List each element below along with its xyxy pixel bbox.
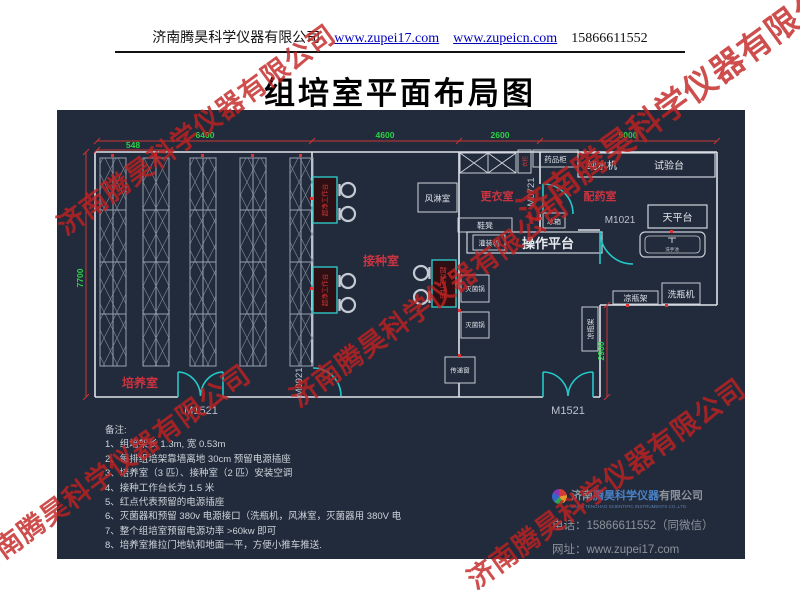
door-code-m1021: M1021 xyxy=(605,215,636,226)
dim-6400: 6400 xyxy=(196,130,215,140)
shoe-bench: 鞋凳 xyxy=(458,218,512,232)
dim-7700: 7700 xyxy=(75,268,85,287)
hand-sink-label: 洗手池 xyxy=(665,246,679,253)
balance-table: 天平台 xyxy=(648,205,707,228)
balance-table-label: 天平台 xyxy=(663,211,693,224)
bottle-rack-label: 凉瓶架 xyxy=(624,293,648,303)
bottle-rack-label: 凉瓶架 xyxy=(586,319,595,340)
test-bench-label: 试验台 xyxy=(654,159,684,172)
header-link-zupei17[interactable]: www.zupei17.com xyxy=(334,31,439,47)
footer-phone-value: 15866611552（同微信） xyxy=(587,520,714,532)
note-item: 1、组培架长 1.3m, 宽 0.53m xyxy=(105,438,455,452)
sterilizer-label: 灭菌锅 xyxy=(465,284,485,293)
page: 济南腾昊科学仪器有限公司 www.zupei17.com www.zupeicn… xyxy=(0,0,800,600)
clean-bench-label: 超净工作台 xyxy=(439,267,448,300)
footer-company-prefix: 济南 xyxy=(571,490,593,502)
medicine-cabinet-label: 药品柜 xyxy=(544,154,567,164)
fridge-label: 冰箱 xyxy=(547,217,561,226)
door-code-m0721: M0721 xyxy=(526,177,537,206)
top-counter: 纯水机 试验台 xyxy=(578,153,715,177)
footer-company-core: 腾昊科学仪器 xyxy=(593,490,659,502)
air-shower-label: 风淋室 xyxy=(425,194,451,204)
sterilizer-2: 灭菌锅 xyxy=(461,312,489,338)
note-item: 2、每排组培架靠墙离地 30cm 预留电源插座 xyxy=(105,453,455,467)
dim-4600: 4600 xyxy=(376,130,395,140)
door-code-m1521: M1521 xyxy=(184,405,218,417)
note-item: 8、培养室推拉门地轨和地面一平，方便小推车推送. xyxy=(105,539,455,553)
transfer-window: 传递窗 xyxy=(445,357,475,383)
stools xyxy=(340,183,430,312)
room-culture: 培养室 xyxy=(122,375,158,390)
header-company: 济南腾昊科学仪器有限公司 xyxy=(152,27,320,47)
notes-block: 备注: 1、组培架长 1.3m, 宽 0.53m 2、每排组培架靠墙离地 30c… xyxy=(105,424,455,554)
clean-bench-label: 超净工作台 xyxy=(320,184,329,217)
header-link-zupeicn[interactable]: www.zupeicn.com xyxy=(453,31,557,47)
header-divider xyxy=(115,51,685,53)
footer-company-suffix: 有限公司 xyxy=(659,490,703,502)
filling-machine: 灌装机 xyxy=(473,235,505,250)
hand-sink: 洗手池 xyxy=(640,232,705,257)
sterilizer-1: 灭菌锅 xyxy=(461,275,489,302)
culture-racks xyxy=(100,158,313,366)
transfer-window-label: 传递窗 xyxy=(450,366,470,375)
sterilizer-label: 灭菌锅 xyxy=(465,320,485,329)
bottle-washer-label: 洗瓶机 xyxy=(667,289,694,300)
dim-548: 548 xyxy=(126,140,140,150)
walls xyxy=(95,152,717,397)
water-purifier-label: 纯水机 xyxy=(587,159,617,172)
door-code-m0921: M0921 xyxy=(294,367,305,396)
footer-phone-line: 电话：15866611552（同微信） xyxy=(552,517,742,533)
footer-web-label: 网址： xyxy=(552,544,587,556)
room-dispensing: 配药室 xyxy=(584,189,617,203)
wardrobe-label: 衣柜 xyxy=(521,156,529,168)
footer-phone-label: 电话： xyxy=(552,520,587,532)
footer-web-line: 网址：www.zupei17.com xyxy=(552,541,742,557)
note-item: 6、灭菌器和预留 380v 电源接口（洗瓶机，风淋室，灭菌器用 380V 电 xyxy=(105,510,455,524)
operation-platform-label: 操作平台 xyxy=(522,236,574,251)
footer-company-name: 济南腾昊科学仪器有限公司 xyxy=(571,487,703,503)
notes-title: 备注: xyxy=(105,424,455,438)
note-item: 3、培养室（3 匹）、接种室（2 匹）安装空调 xyxy=(105,467,455,481)
header: 济南腾昊科学仪器有限公司 www.zupei17.com www.zupeicn… xyxy=(0,27,800,47)
wardrobe-cabinet: 衣柜 xyxy=(518,150,531,173)
note-item: 5、红点代表预留的电源插座 xyxy=(105,496,455,510)
note-item: 4、接种工作台长为 1.5 米 xyxy=(105,482,455,496)
room-changing: 更衣室 xyxy=(481,189,514,203)
filling-machine-label: 灌装机 xyxy=(479,239,500,248)
lockers xyxy=(460,153,516,173)
note-item: 7、整个组培室预留电源功率 >60kw 即可 xyxy=(105,525,455,539)
page-title: 组培室平面布局图 xyxy=(0,68,800,113)
door-code-m1521: M1521 xyxy=(551,405,585,417)
bottle-washer: 洗瓶机 xyxy=(662,283,700,304)
company-logo-icon xyxy=(552,489,567,504)
fridge: 冰箱 xyxy=(543,213,565,228)
footer-company-en: JINAN TENGHAO SCIENTIFIC INSTRUMENTS CO.… xyxy=(571,504,703,509)
air-shower-room: 风淋室 xyxy=(418,183,457,212)
clean-bench-label: 超净工作台 xyxy=(320,274,329,307)
shoe-bench-label: 鞋凳 xyxy=(477,221,493,231)
dim-2600: 2600 xyxy=(491,130,510,140)
bottle-rack-h: 凉瓶架 xyxy=(613,291,658,304)
dim-5000: 5000 xyxy=(619,130,638,140)
room-inoculation: 接种室 xyxy=(363,253,399,268)
footer-brand: 济南腾昊科学仪器有限公司 JINAN TENGHAO SCIENTIFIC IN… xyxy=(552,487,742,557)
header-phone: 15866611552 xyxy=(571,31,647,47)
footer-web-value[interactable]: www.zupei17.com xyxy=(587,544,680,556)
